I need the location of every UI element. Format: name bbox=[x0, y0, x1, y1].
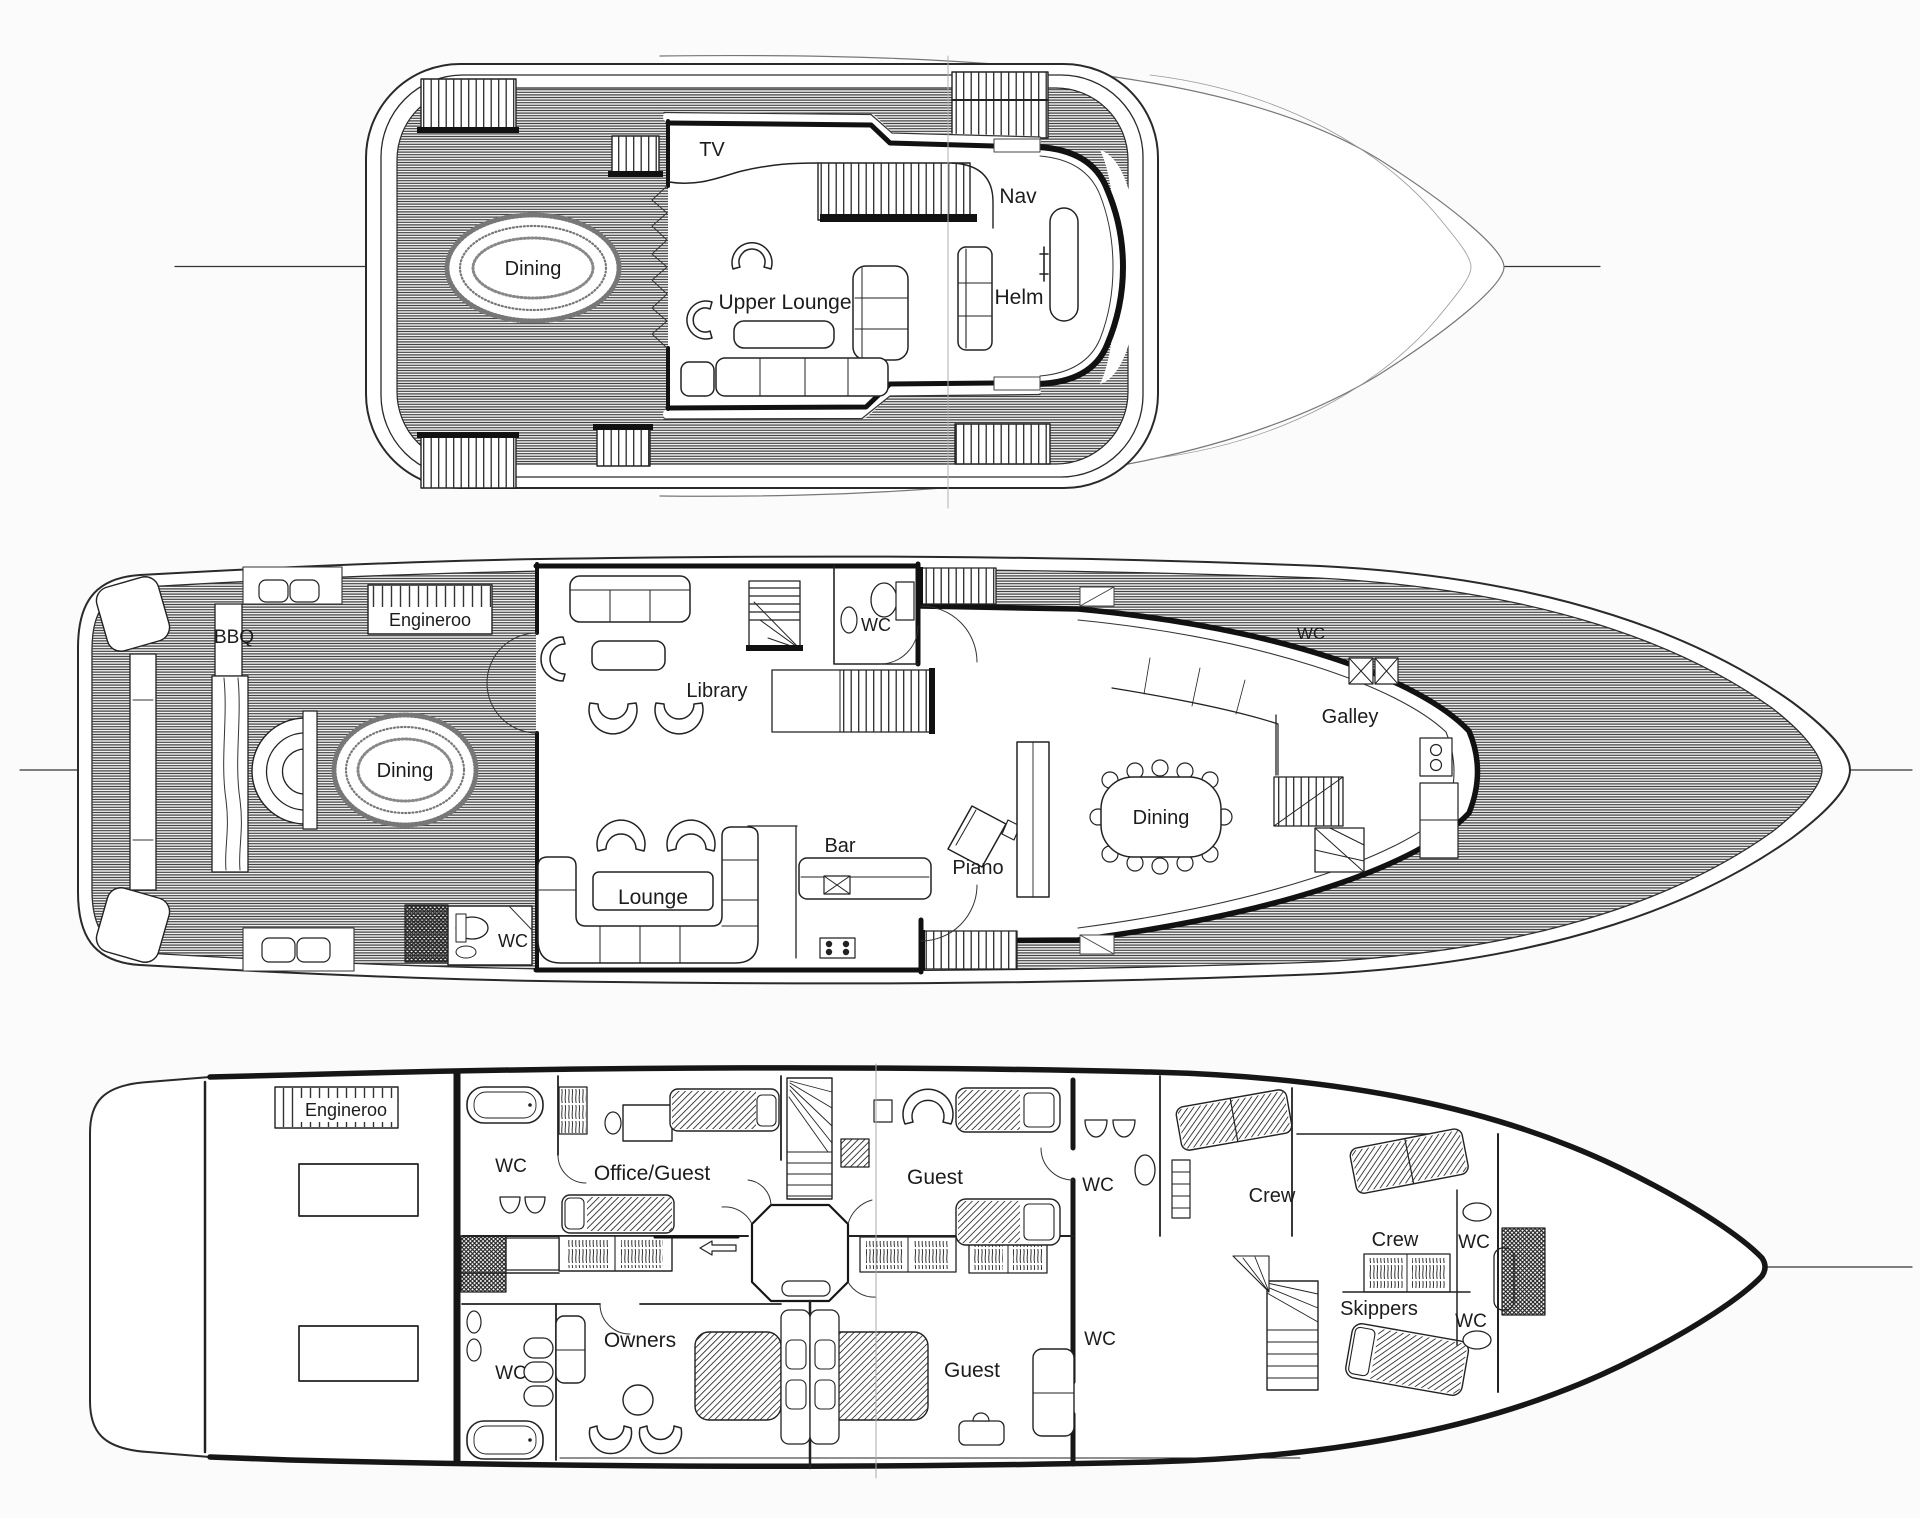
svg-text:Guest: Guest bbox=[944, 1359, 1000, 1382]
svg-text:Upper Lounge: Upper Lounge bbox=[718, 291, 851, 314]
svg-text:Engineroo: Engineroo bbox=[389, 610, 471, 630]
svg-text:Lounge: Lounge bbox=[618, 886, 688, 909]
svg-text:Dining: Dining bbox=[1133, 807, 1190, 829]
svg-text:Crew: Crew bbox=[1249, 1185, 1296, 1207]
svg-text:Dining: Dining bbox=[505, 258, 562, 280]
svg-text:Dining: Dining bbox=[377, 760, 434, 782]
svg-text:WC: WC bbox=[1297, 624, 1325, 643]
svg-text:BBQ: BBQ bbox=[214, 627, 254, 648]
svg-text:WC: WC bbox=[861, 615, 891, 635]
svg-text:Piano: Piano bbox=[952, 857, 1003, 879]
svg-text:WC: WC bbox=[495, 1156, 527, 1177]
svg-text:Helm: Helm bbox=[994, 286, 1043, 309]
svg-text:WC: WC bbox=[1458, 1232, 1490, 1253]
svg-text:Crew: Crew bbox=[1372, 1229, 1419, 1251]
svg-text:Owners: Owners bbox=[604, 1329, 676, 1352]
svg-text:Library: Library bbox=[686, 680, 747, 702]
svg-text:Skippers: Skippers bbox=[1340, 1298, 1418, 1320]
svg-text:Galley: Galley bbox=[1322, 706, 1379, 728]
svg-text:WC: WC bbox=[1082, 1175, 1114, 1196]
svg-text:WC: WC bbox=[1084, 1329, 1116, 1350]
svg-text:Bar: Bar bbox=[824, 835, 855, 857]
svg-text:Engineroo: Engineroo bbox=[305, 1100, 387, 1120]
svg-text:Nav: Nav bbox=[999, 185, 1037, 208]
svg-text:WC: WC bbox=[495, 1363, 527, 1384]
svg-text:WC: WC bbox=[498, 931, 528, 951]
svg-text:Office/Guest: Office/Guest bbox=[594, 1162, 710, 1185]
svg-text:TV: TV bbox=[699, 139, 725, 161]
svg-text:WC: WC bbox=[1455, 1311, 1487, 1332]
svg-text:Guest: Guest bbox=[907, 1166, 963, 1189]
